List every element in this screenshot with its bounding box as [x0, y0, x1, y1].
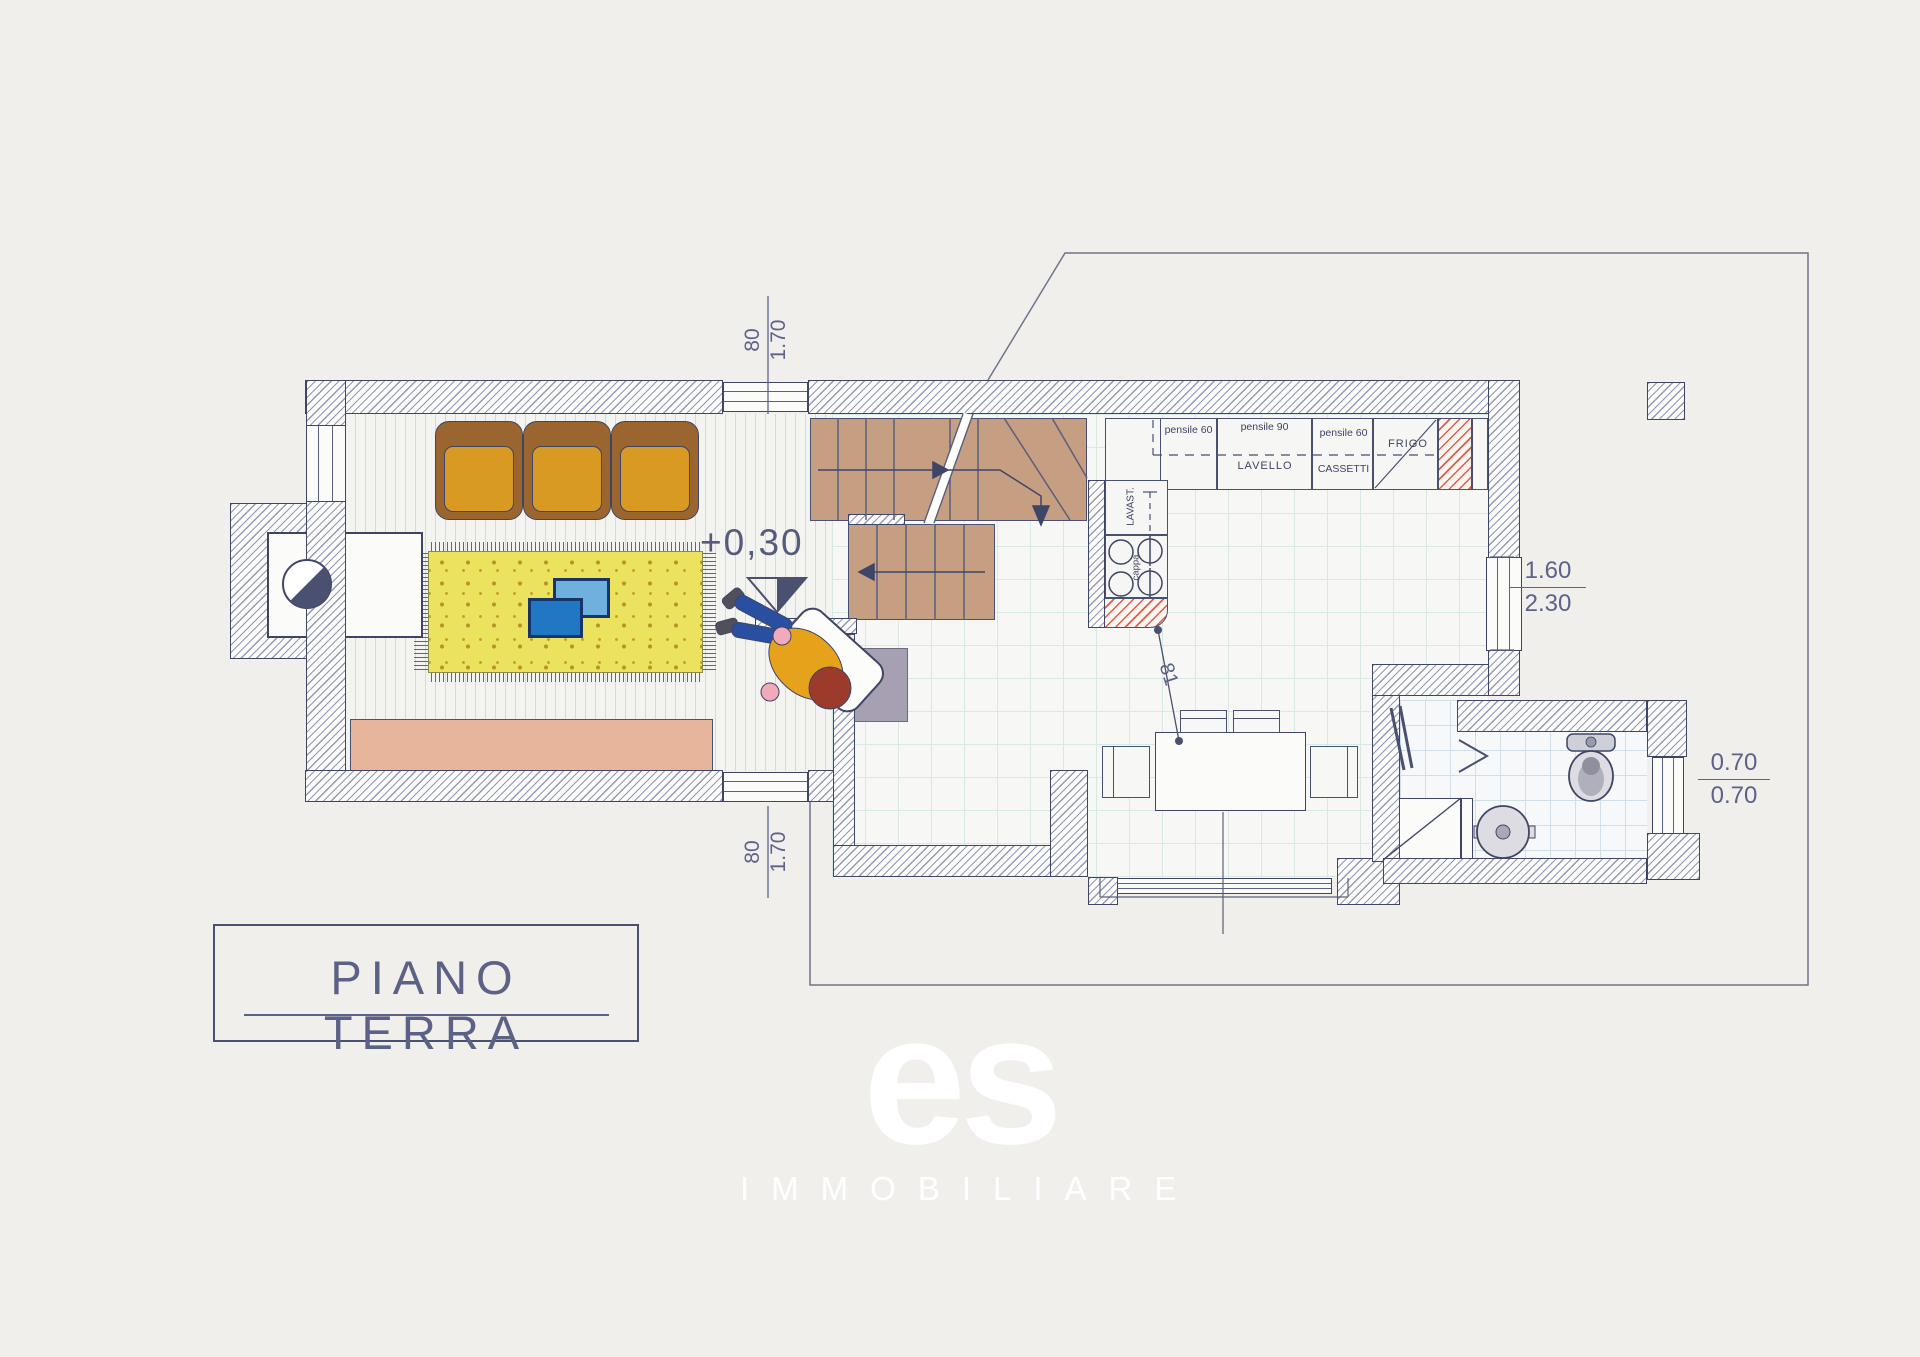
stairs-lower-flight [848, 524, 995, 620]
kitchen-column-hatched [1102, 598, 1168, 628]
wall-bottom-living [305, 770, 723, 802]
agency-watermark: es IMMOBILIARE [740, 1030, 1180, 1220]
dim-window-bath: 0.70 0.70 [1692, 748, 1776, 811]
dim-bath-over: 0.70 [1711, 748, 1758, 778]
label-pensile-60-right: pensile 60 [1315, 427, 1372, 439]
sofa-cushion-1 [444, 446, 514, 512]
kitchen-dishwasher-unit [1105, 480, 1168, 535]
wall-kitchen-divider [1088, 480, 1105, 628]
dining-chair-top-2 [1233, 710, 1280, 733]
dim-right-fraction-line [1510, 587, 1586, 588]
wall-top-right [808, 380, 1490, 414]
wall-bath-bottom [1383, 858, 1647, 884]
courtyard-pillar [1647, 382, 1685, 420]
page-title: PIANO TERRA [215, 950, 637, 1060]
wall-bath-top [1457, 700, 1647, 732]
label-cassetti: CASSETTI [1313, 463, 1374, 475]
label-pensile-60-left: pensile 60 [1160, 424, 1217, 436]
dim-top-under: 1.70 [766, 320, 792, 361]
sofa-cushion-2 [532, 446, 602, 512]
title-box: PIANO TERRA [213, 924, 639, 1042]
dim-bottom-under: 1.70 [766, 832, 792, 873]
dim-window-top: 80 1.70 [740, 280, 796, 400]
wall-under-stairs [755, 618, 857, 634]
wall-bath-right-upper [1647, 700, 1687, 757]
agency-logo-mark: es [740, 988, 1180, 1173]
dining-chair-top-1 [1180, 710, 1227, 733]
label-lavastoviglie: LAVAST. [1126, 480, 1137, 534]
rug-fringe-top [428, 542, 703, 551]
kitchen-unit-fridge [1373, 418, 1438, 490]
label-frigo: FRIGO [1380, 438, 1436, 450]
wall-bay-right [1372, 690, 1400, 862]
stairs-upper-flight [810, 418, 1087, 521]
dim-top-over: 80 [740, 328, 766, 351]
dim-window-bottom: 80 1.70 [740, 792, 796, 912]
window-bathroom [1652, 757, 1684, 834]
dim-bath-fraction-line [1698, 779, 1770, 780]
wall-hall-bottom [833, 845, 1073, 877]
window-left [306, 425, 346, 502]
dining-chair-left [1102, 746, 1150, 798]
title-underline [244, 1014, 609, 1016]
floor-plan-page: { "title": { "label": "PIANO TERRA" }, "… [0, 0, 1920, 1357]
wall-bath-right-lower [1647, 833, 1700, 880]
label-cappa: cappa [1131, 548, 1142, 588]
agency-logo-text: IMMOBILIARE [740, 1170, 1180, 1208]
dim-bath-under: 0.70 [1711, 781, 1758, 811]
wall-hall-left [833, 634, 855, 877]
floor-level-label: +0,30 [700, 522, 804, 564]
wall-stair-parapet [848, 514, 905, 525]
kitchen-end-unit [1472, 418, 1488, 490]
dim-right-under: 2.30 [1525, 589, 1572, 619]
wall-top-left [305, 380, 723, 414]
dining-table [1155, 732, 1306, 811]
dim-right-over: 1.60 [1525, 556, 1572, 586]
wall-bay-left [1050, 770, 1088, 877]
dim-window-right: 1.60 2.30 [1504, 556, 1592, 619]
dim-bottom-over: 80 [740, 840, 766, 863]
label-pensile-90: pensile 90 [1220, 421, 1309, 433]
shower-door-strip [1461, 798, 1473, 860]
sliding-door-dining [1117, 878, 1332, 894]
label-lavello: LAVELLO [1222, 460, 1308, 472]
rug-pillow-dark [528, 598, 583, 638]
sideboard [350, 719, 713, 772]
sofa-cushion-3 [620, 446, 690, 512]
wall-kitchen-right-upper [1488, 380, 1520, 560]
kitchen-pantry-hatched [1438, 418, 1472, 490]
rug-fringe-bottom [428, 673, 703, 682]
wall-kitchen-right-lower [1488, 650, 1520, 696]
rug-fringe-right [702, 551, 716, 673]
wall-bay-bottom-left [1088, 877, 1118, 905]
dining-chair-right [1310, 746, 1358, 798]
hall-cabinet [853, 648, 908, 722]
